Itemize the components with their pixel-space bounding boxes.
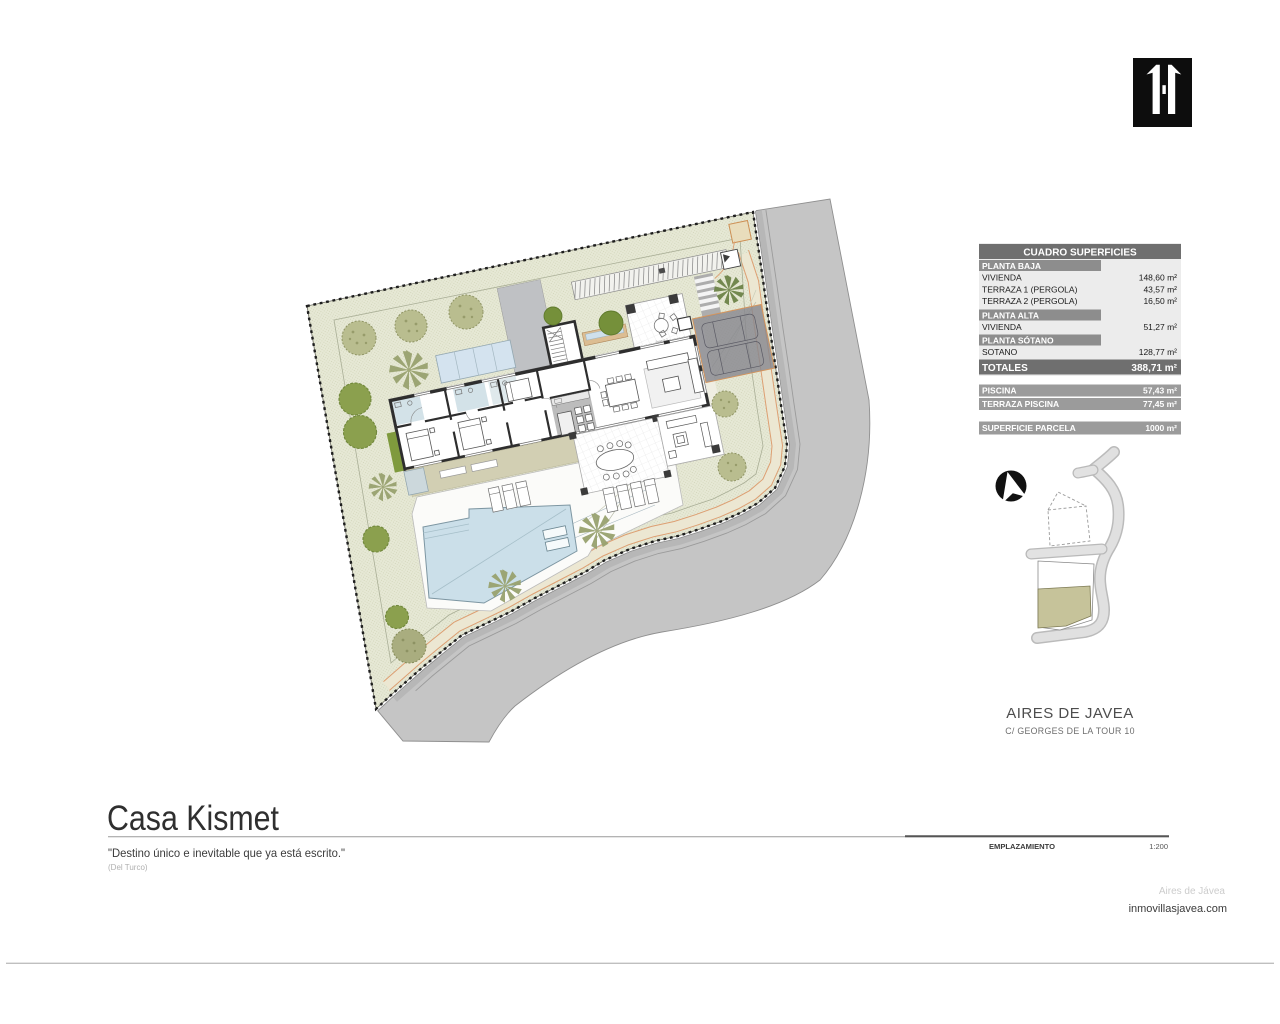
svg-text:PLANTA ALTA: PLANTA ALTA xyxy=(982,310,1039,320)
svg-text:77,45 m²: 77,45 m² xyxy=(1143,399,1177,409)
svg-text:VIVIENDA: VIVIENDA xyxy=(982,322,1022,332)
svg-text:inmovillasjavea.com: inmovillasjavea.com xyxy=(1129,903,1227,915)
svg-text:148,60 m²: 148,60 m² xyxy=(1139,273,1177,283)
svg-text:C/ GEORGES DE LA TOUR 10: C/ GEORGES DE LA TOUR 10 xyxy=(1005,726,1135,736)
svg-text:(Del Turco): (Del Turco) xyxy=(108,863,148,872)
svg-text:EMPLAZAMIENTO: EMPLAZAMIENTO xyxy=(989,842,1055,851)
svg-text:128,77 m²: 128,77 m² xyxy=(1139,347,1177,357)
svg-text:PLANTA BAJA: PLANTA BAJA xyxy=(982,261,1041,271)
svg-text:PISCINA: PISCINA xyxy=(982,386,1016,396)
svg-text:VIVIENDA: VIVIENDA xyxy=(982,273,1022,283)
svg-text:1000 m²: 1000 m² xyxy=(1145,423,1177,433)
svg-text:16,50 m²: 16,50 m² xyxy=(1143,296,1177,306)
svg-text:CUADRO SUPERFICIES: CUADRO SUPERFICIES xyxy=(1023,248,1137,259)
svg-text:TERRAZA 1 (PERGOLA): TERRAZA 1 (PERGOLA) xyxy=(982,285,1078,295)
svg-text:"Destino único e inevitable qu: "Destino único e inevitable que ya está … xyxy=(108,846,345,860)
svg-text:SOTANO: SOTANO xyxy=(982,347,1018,357)
svg-text:SUPERFICIE PARCELA: SUPERFICIE PARCELA xyxy=(982,423,1076,433)
svg-text:388,71 m²: 388,71 m² xyxy=(1131,363,1177,374)
svg-text:51,27 m²: 51,27 m² xyxy=(1143,322,1177,332)
svg-text:Casa Kismet: Casa Kismet xyxy=(107,799,279,838)
svg-text:43,57 m²: 43,57 m² xyxy=(1143,285,1177,295)
svg-text:TOTALES: TOTALES xyxy=(982,363,1028,374)
svg-text:TERRAZA 2 (PERGOLA): TERRAZA 2 (PERGOLA) xyxy=(982,296,1078,306)
svg-text:Aires de Jávea: Aires de Jávea xyxy=(1159,886,1226,897)
svg-text:57,43 m²: 57,43 m² xyxy=(1143,386,1177,396)
svg-text:AIRES DE JAVEA: AIRES DE JAVEA xyxy=(1006,705,1134,722)
svg-text:PLANTA SÓTANO: PLANTA SÓTANO xyxy=(982,334,1054,345)
svg-text:1:200: 1:200 xyxy=(1149,842,1168,851)
svg-text:TERRAZA PISCINA: TERRAZA PISCINA xyxy=(982,399,1059,409)
